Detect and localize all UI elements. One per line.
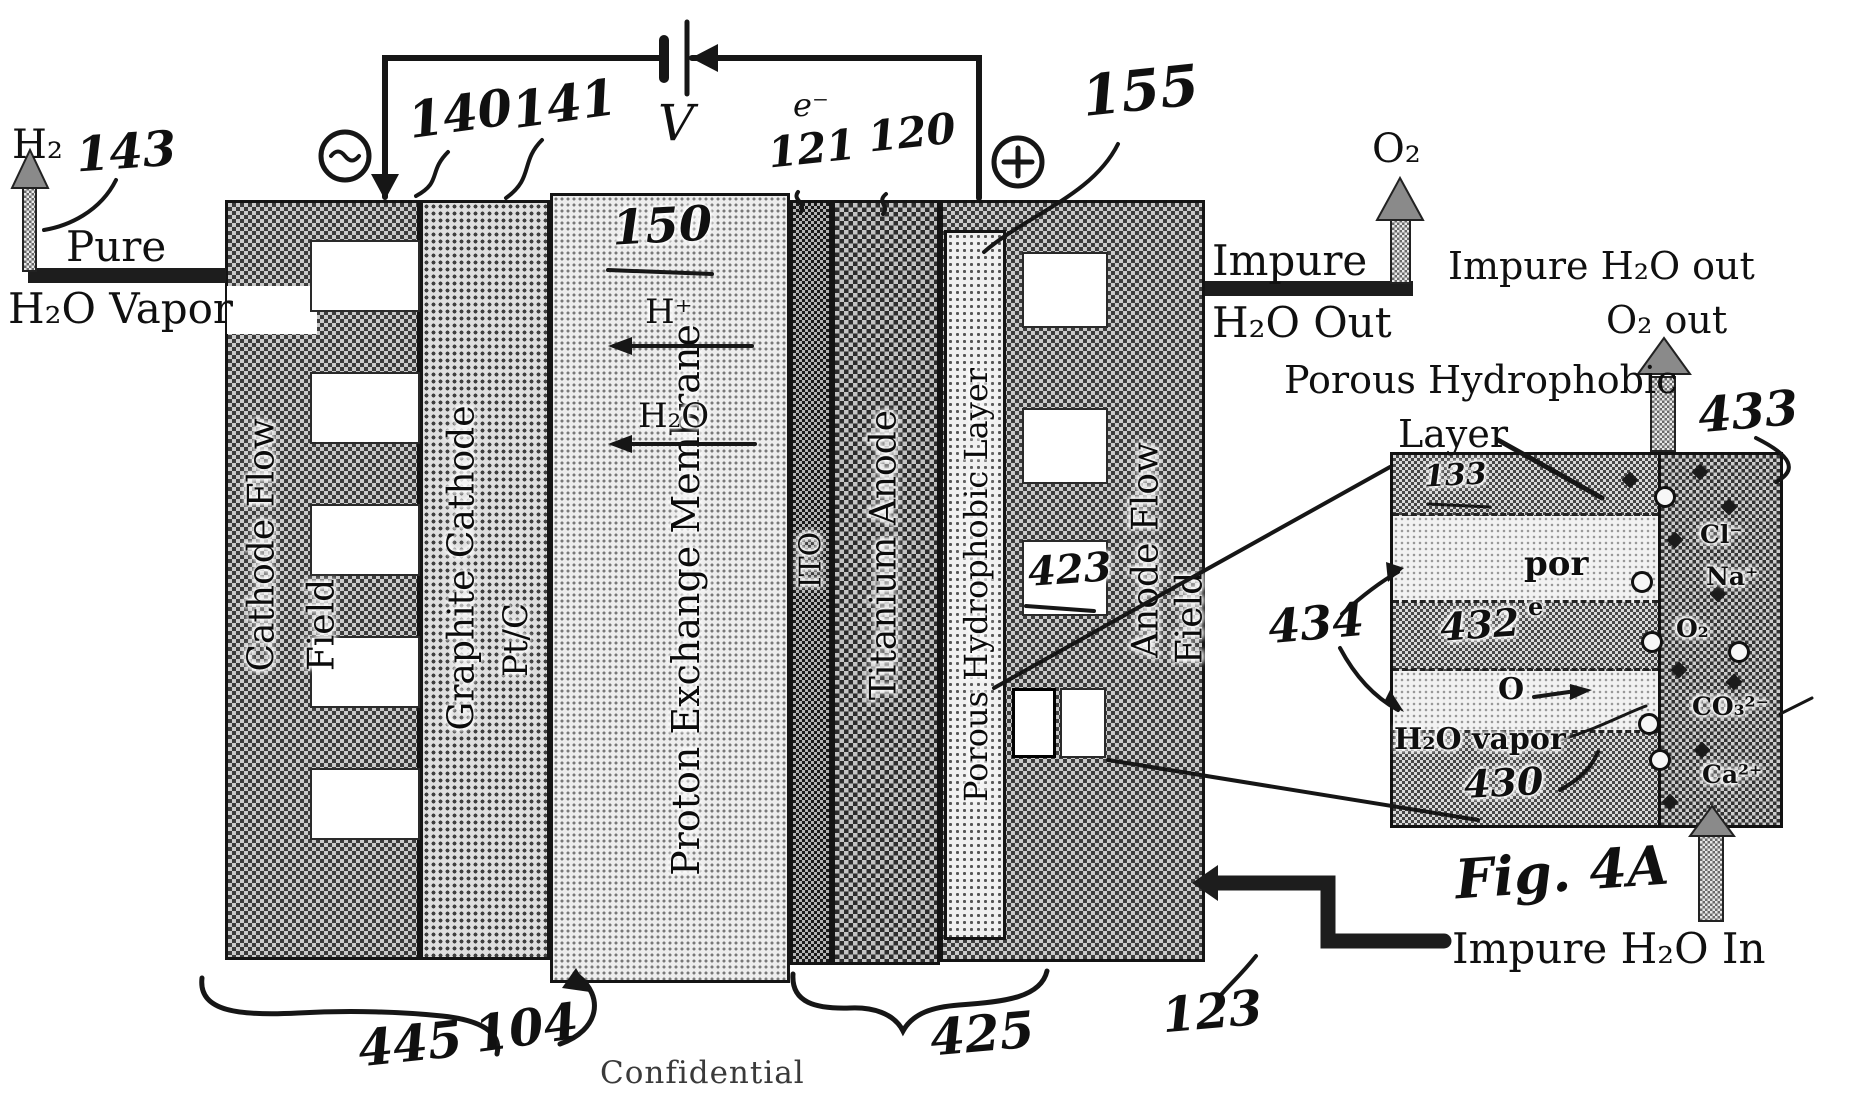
ref-143: 143 [74,121,178,184]
ref-425: 425 [928,1000,1037,1068]
ref-445: 445 [355,1009,465,1079]
cathode-channel [310,768,420,840]
o2-out-arrow-bar [1390,218,1411,284]
ref-155: 155 [1079,52,1202,130]
ref-123: 123 [1160,980,1265,1045]
arrow-up-icon [1377,178,1423,220]
inset-porous-label-2: Layer [1398,412,1508,456]
cathode-channel [310,504,420,576]
ref-121: 121 [766,120,858,178]
ion-cl-label: Cl⁻ [1700,520,1743,549]
arrow-left-icon [691,44,718,72]
ref-133: 133 [1423,456,1487,494]
graphite-cathode-label: Graphite Cathode [442,405,483,730]
inset-layer-solid-mid [1393,603,1658,671]
anode-flow-field-label-1: Anode Flow [1126,442,1167,658]
plus-sign-icon [1004,148,1032,176]
ref-433: 433 [1696,380,1801,445]
plus-terminal-icon [994,138,1042,186]
bubble-icon [1641,631,1663,653]
h2o-vapor-label: H₂O Vapor [8,284,233,333]
ref-423: 423 [1026,543,1113,596]
impure-h2o-in-label: Impure H₂O In [1452,924,1766,973]
arrow-down-icon [371,174,399,200]
ion-o2-label: O₂ [1676,614,1709,643]
ref-432: 432 [1439,599,1521,649]
h2-out-arrow-bar [22,186,37,272]
titanium-anode-label: Titanium Anode [864,410,905,700]
inset-impure-in-bar [1698,834,1724,922]
h2o-out-label: H₂O Out [1212,298,1392,347]
bubble-icon [1638,713,1660,735]
bubble-icon [1728,641,1750,663]
ref-120: 120 [866,104,958,162]
h-plus-label: H⁺ [645,292,693,332]
cathode-flow-field-label-2: Field [302,579,343,671]
cathode-inlet-notch [227,286,317,334]
cathode-channel [310,240,420,312]
leader-co3 [1780,698,1812,714]
pure-label: Pure [66,222,166,271]
ref-430: 430 [1463,758,1545,807]
inset-h2o-vapor-label: H₂O vapor [1394,722,1566,757]
inset-porous-label-1: Porous Hydrophobic [1284,358,1677,402]
cathode-flow-field-label-1: Cathode Flow [242,418,283,671]
anode-channel [1022,252,1108,328]
inset-impure-h2o-out-label: Impure H₂O out [1448,244,1755,288]
minus-sign-icon [331,152,359,161]
anode-channel [1022,408,1108,484]
ion-co3-label: CO₃²⁻ [1692,692,1769,721]
patent-figure-4a: Cathode Flow Field Graphite Cathode Pt/C… [0,0,1876,1098]
inset-o-label: O [1498,672,1524,707]
impure-label: Impure [1212,236,1367,285]
ref-140: 140 [404,77,516,150]
minus-terminal-icon [321,132,369,180]
graphite-cathode-block [420,200,550,960]
ion-ca-label: Ca²⁺ [1702,760,1762,789]
confidential-watermark: Confidential [600,1055,805,1091]
ref-104: 104 [470,991,582,1064]
ref-434: 434 [1266,592,1366,654]
inset-o2-out-label: O₂ out [1606,298,1727,342]
fig-4a-label: Fig. 4A [1453,833,1671,912]
ptc-label: Pt/C [496,603,536,677]
leader-140 [416,152,448,196]
inset-e-label: e [1528,592,1543,621]
o2-label: O₂ [1372,126,1421,172]
voltage-label: V [658,94,694,152]
anode-channel [1060,688,1106,758]
h2-label: H₂ [12,122,63,168]
cathode-channel [310,372,420,444]
bubble-icon [1654,486,1676,508]
anode-flow-field-label-2: Field [1170,572,1211,664]
detail-source-box [1012,688,1056,758]
inset-por-label: por [1524,544,1588,584]
bubble-icon [1649,749,1671,771]
h2o-label: H₂O [638,396,709,436]
impure-in-pipe [1218,883,1444,941]
ito-label: ITO [794,532,829,588]
ref-141: 141 [508,67,620,140]
leader-141 [506,140,542,198]
bubble-icon [1631,571,1653,593]
porous-layer-label: Porous Hydrophobic Layer [957,368,995,802]
electron-label: e⁻ [793,86,829,124]
ref-150: 150 [611,195,714,256]
ion-na-label: Na⁺ [1706,562,1758,591]
